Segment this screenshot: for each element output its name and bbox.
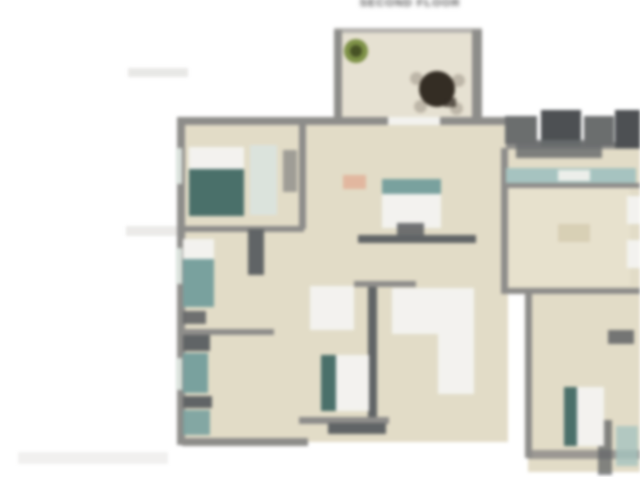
floorplan-canvas [0, 0, 640, 477]
dresser-right-bottom [608, 330, 634, 344]
rug-salmon [343, 175, 366, 189]
patio-table-ext [444, 98, 456, 107]
window-top-center [388, 117, 440, 125]
wardrobe-bottom-left [183, 353, 208, 393]
window-left-3 [176, 358, 182, 390]
closet1 [250, 145, 277, 215]
watermark-smudge [18, 452, 168, 464]
wall-center-band [358, 235, 476, 243]
deck-wall-left [334, 30, 342, 128]
nightstand2 [183, 311, 206, 324]
stair-landing [310, 286, 354, 330]
bed1-mattress [189, 147, 244, 171]
window-left-2 [176, 248, 182, 284]
cabinet-bottom-left [183, 410, 210, 435]
dresser-bottom-left-2 [183, 396, 212, 408]
wall-vertical-center [368, 281, 377, 421]
bed1-blanket [189, 169, 244, 216]
dresser1 [283, 150, 297, 192]
bed2-mattress [183, 239, 214, 261]
window-right-bottom [616, 426, 638, 466]
counter-white [558, 170, 590, 181]
closet-dark [248, 229, 264, 275]
stair-run-vertical [438, 288, 474, 394]
bed4-mattress [336, 355, 369, 411]
floorplan-scene: SECOND FLOOR [0, 0, 640, 477]
window-left-1 [176, 148, 182, 184]
table-right [558, 224, 590, 242]
roof-clutter-5 [516, 140, 602, 158]
roof-clutter-4 [615, 110, 640, 148]
bed5-mattress [577, 387, 604, 446]
bed2-blanket [183, 259, 214, 307]
wall-under-counter [506, 183, 640, 188]
deck-wall-top [334, 28, 482, 33]
bench3 [397, 223, 424, 236]
deck-plant-core [350, 45, 362, 57]
wall-stair-top [354, 281, 416, 287]
dresser-bottom-left-1 [183, 335, 210, 351]
wall-horizontal-left-1 [182, 226, 304, 232]
wall-bottom-center-dark [328, 423, 386, 434]
wall-vertical-right-2 [525, 290, 532, 458]
bg-smudge-1 [128, 68, 188, 77]
wall-divider-vertical-1 [299, 121, 306, 229]
wall-top-main [182, 117, 508, 125]
window-right-2 [627, 240, 640, 268]
deck-wall-right [472, 30, 482, 128]
wall-bottom-left [182, 438, 308, 446]
window-right-1 [627, 196, 640, 224]
